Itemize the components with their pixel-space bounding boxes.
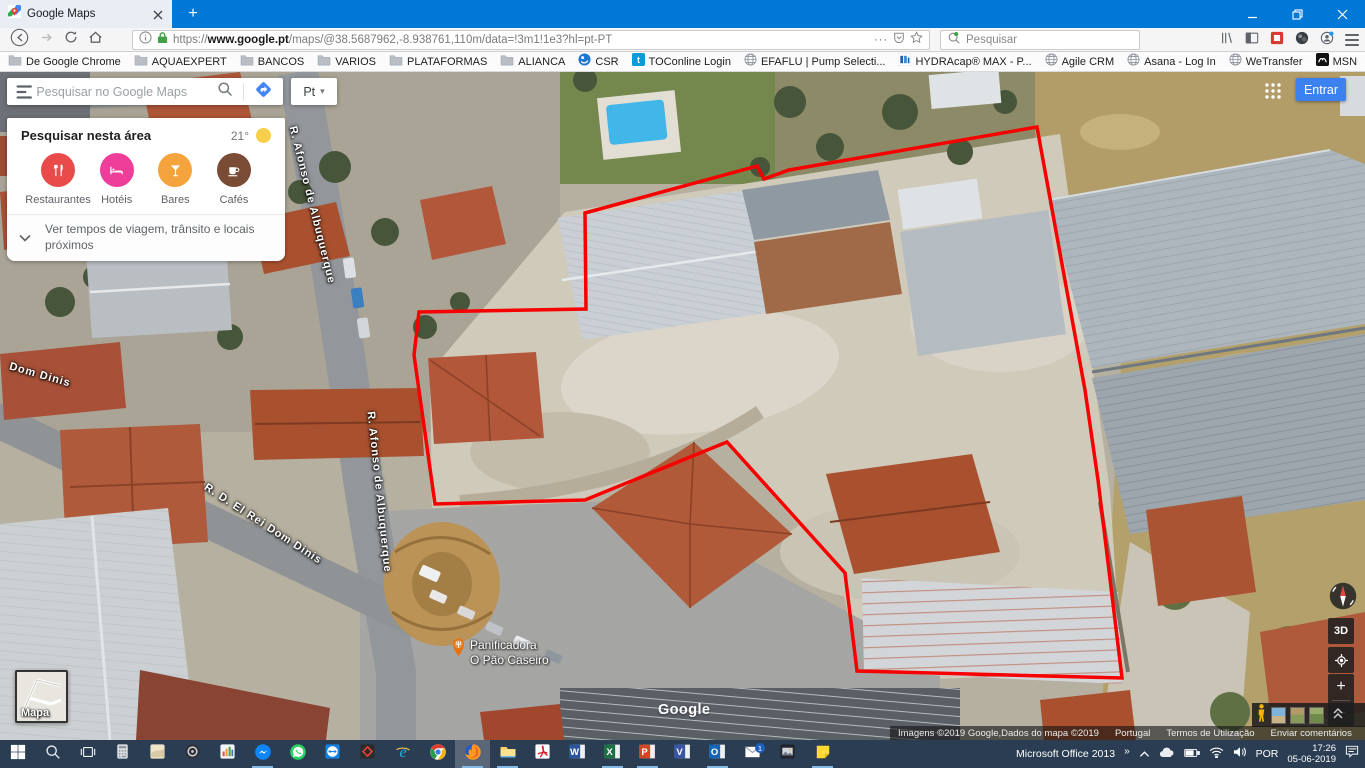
panel-title: Pesquisar nesta área: [21, 128, 231, 143]
teamviewer-icon: [324, 743, 341, 765]
extension-downloadhelper-icon[interactable]: [1295, 31, 1309, 50]
search-this-area-panel: Pesquisar nesta área 21° RestaurantesHot…: [7, 118, 285, 261]
bookmark-item[interactable]: CSR: [578, 53, 618, 71]
library-icon[interactable]: [1220, 31, 1234, 50]
weather-sun-icon[interactable]: [256, 128, 271, 143]
internet-explorer-icon: e: [394, 743, 412, 766]
restore-button[interactable]: [1275, 0, 1320, 28]
search-icon: [45, 744, 61, 765]
svg-text:V: V: [676, 747, 683, 758]
file-explorer-icon: [499, 743, 517, 766]
bookmark-item[interactable]: tTOConline Login: [632, 53, 731, 71]
browser-navbar: https://www.google.pt/maps/@38.5687962,-…: [0, 28, 1365, 52]
msn-icon: [1316, 53, 1329, 71]
account-icon[interactable]: [1320, 31, 1334, 50]
globe-icon: [1127, 53, 1140, 71]
word-icon: W: [568, 742, 587, 766]
temperature: 21°: [231, 129, 249, 143]
taskbar-app-sticky-notes[interactable]: [805, 740, 840, 768]
excel-icon: X: [603, 742, 622, 766]
bookmark-item[interactable]: BANCOS: [240, 53, 304, 71]
bookmark-item[interactable]: HYDRAcap® MAX - P...: [898, 53, 1031, 71]
sidebars-icon[interactable]: [1245, 31, 1259, 50]
task-view-icon: [80, 744, 96, 765]
taskbar-app-disc-app[interactable]: [175, 740, 210, 768]
search-engine-icon: [947, 31, 961, 50]
sticky-notes-icon: [815, 744, 831, 765]
close-button[interactable]: [1320, 0, 1365, 28]
maps-search-icon[interactable]: [217, 81, 233, 102]
notification-badge: 1: [755, 743, 765, 753]
restaurant-pin-icon: [452, 638, 465, 662]
cafe-icon[interactable]: [217, 153, 251, 187]
taskbar-app-photos[interactable]: [140, 740, 175, 768]
map-mode-thumbnail[interactable]: Mapa: [15, 670, 68, 723]
reload-button[interactable]: [64, 30, 78, 49]
taskbar-app-start[interactable]: [0, 740, 35, 768]
bookmark-item[interactable]: MSN: [1316, 53, 1357, 71]
tab-close-icon[interactable]: [152, 8, 164, 20]
taskbar-app-powerpoint[interactable]: P: [630, 740, 665, 768]
extension-screenshot-icon[interactable]: [1270, 31, 1284, 50]
bookmark-item[interactable]: WeTransfer: [1229, 53, 1303, 71]
imagery-thumbnail[interactable]: [1309, 707, 1324, 724]
travel-times-label: Ver tempos de viagem, trânsito e locais …: [45, 222, 275, 253]
maps-search-input[interactable]: [36, 85, 207, 99]
tray-chevron-up-icon[interactable]: [1139, 745, 1150, 763]
taskbar-app-mail[interactable]: 1: [735, 740, 770, 768]
google-apps-grid-icon[interactable]: [1264, 82, 1282, 100]
map-viewport[interactable]: PanificadoraO Pão Caseiro Google Pt▾ Pes…: [0, 72, 1365, 740]
site-info-icon[interactable]: [139, 31, 152, 49]
new-tab-button[interactable]: +: [178, 0, 208, 28]
bookmark-item[interactable]: ALIANCA: [500, 53, 565, 71]
svg-text:X: X: [606, 747, 613, 758]
start-icon: [10, 744, 26, 765]
imagery-credit: Imagens ©2019 Google,Dados do mapa ©2019: [898, 728, 1099, 739]
disc-app-icon: [184, 743, 201, 765]
pocket-icon[interactable]: [893, 31, 905, 49]
bookmark-item[interactable]: EFAFLU | Pump Selecti...: [744, 53, 886, 71]
windows-taskbar: eWXPVO1 Microsoft Office 2013 » POR 17:2…: [0, 740, 1365, 768]
taskbar-app-anydesk[interactable]: [350, 740, 385, 768]
map-attribution: Imagens ©2019 Google,Dados do mapa ©2019…: [890, 726, 1365, 740]
view-3d-button[interactable]: 3D: [1328, 618, 1354, 644]
minimize-button[interactable]: [1230, 0, 1275, 28]
taskbar-app-messenger[interactable]: [245, 740, 280, 768]
my-location-button[interactable]: [1328, 647, 1354, 673]
category-cafe[interactable]: Cafés: [205, 153, 263, 206]
chevron-down-icon: [19, 229, 31, 247]
outlook-icon: O: [708, 742, 727, 766]
compass-control[interactable]: [1328, 581, 1354, 616]
volume-icon[interactable]: [1233, 745, 1247, 763]
bookmarks-bar: De Google ChromeAQUAEXPERTBANCOSVARIOSPL…: [0, 52, 1365, 72]
toconline-icon: t: [632, 53, 645, 71]
visio-icon: V: [673, 742, 692, 766]
svg-text:O: O: [711, 747, 718, 758]
taskbar-app-outlook[interactable]: O: [700, 740, 735, 768]
bar-icon[interactable]: [158, 153, 192, 187]
map-thumb-label: Mapa: [21, 707, 49, 719]
taskbar-app-whatsapp[interactable]: [280, 740, 315, 768]
screen: Google Maps + https://www.google.pt/maps…: [0, 0, 1365, 768]
bookmark-item[interactable]: Asana - Log In: [1127, 53, 1216, 71]
imagery-thumbnail[interactable]: [1271, 707, 1286, 724]
equalizer-app-icon: [219, 743, 236, 765]
taskbar-app-file-explorer[interactable]: [490, 740, 525, 768]
zoom-in-button[interactable]: +: [1328, 674, 1354, 700]
browser-search-bar[interactable]: [940, 30, 1140, 50]
directions-icon[interactable]: [254, 80, 273, 104]
poi-label[interactable]: PanificadoraO Pão Caseiro: [452, 638, 549, 668]
forward-button[interactable]: [39, 30, 54, 50]
battery-icon[interactable]: [1184, 745, 1200, 763]
google-watermark: Google: [658, 702, 710, 718]
photos-icon: [149, 743, 166, 765]
bookmark-item[interactable]: AQUAEXPERT: [134, 53, 227, 71]
taskbar-app-chrome[interactable]: [420, 740, 455, 768]
maps-menu-icon[interactable]: [17, 90, 27, 92]
folder-icon: [8, 53, 22, 71]
taskbar-app-excel[interactable]: X: [595, 740, 630, 768]
csr-icon: [578, 53, 591, 71]
url-text: https://www.google.pt/maps/@38.5687962,-…: [173, 34, 869, 46]
https-lock-icon[interactable]: [157, 31, 168, 49]
travel-times-row[interactable]: Ver tempos de viagem, trânsito e locais …: [7, 214, 285, 261]
category-restaurant[interactable]: Restaurantes: [29, 153, 87, 206]
imagery-thumbnail[interactable]: [1290, 707, 1305, 724]
clock[interactable]: 17:2605-06-2019: [1287, 743, 1336, 766]
caret-down-icon: ▾: [320, 86, 325, 97]
bookmark-item[interactable]: PLATAFORMAS: [389, 53, 487, 71]
taskbar-app-movies[interactable]: [770, 740, 805, 768]
menu-icon[interactable]: [1345, 39, 1359, 41]
home-button[interactable]: [88, 30, 103, 50]
feedback-link[interactable]: Enviar comentários: [1271, 728, 1352, 739]
bookmark-item[interactable]: Agile CRM: [1045, 53, 1115, 71]
url-bar[interactable]: https://www.google.pt/maps/@38.5687962,-…: [132, 30, 930, 50]
folder-icon: [500, 53, 514, 71]
movies-icon: [779, 743, 796, 765]
taskbar-app-task-view[interactable]: [70, 740, 105, 768]
powerpoint-icon: P: [638, 742, 657, 766]
svg-text:t: t: [637, 55, 640, 65]
taskbar-app-firefox[interactable]: [455, 740, 490, 768]
maps-search-card[interactable]: [7, 78, 283, 105]
chrome-icon: [429, 743, 447, 766]
back-button[interactable]: [10, 28, 29, 52]
divider: [243, 83, 244, 101]
terms-link[interactable]: Termos de Utilização: [1166, 728, 1254, 739]
calculator-icon: [114, 743, 131, 765]
firefox-icon: [464, 743, 482, 766]
taskbar-app-equalizer-app[interactable]: [210, 740, 245, 768]
tab-title: Google Maps: [27, 8, 146, 20]
restaurant-icon[interactable]: [41, 153, 75, 187]
taskbar-app-calculator[interactable]: [105, 740, 140, 768]
office-tray-label: Microsoft Office 2013: [1016, 748, 1115, 760]
hotel-icon[interactable]: [100, 153, 134, 187]
svg-text:W: W: [570, 747, 579, 758]
browser-tab[interactable]: Google Maps: [0, 0, 172, 28]
hydracap-icon: [898, 53, 911, 71]
svg-text:e: e: [399, 744, 406, 761]
whatsapp-icon: [289, 743, 307, 766]
taskbar-app-word[interactable]: W: [560, 740, 595, 768]
taskbar-app-visio[interactable]: V: [665, 740, 700, 768]
folder-icon: [389, 53, 403, 71]
google-maps-favicon-icon: [8, 5, 21, 23]
pegman-icon[interactable]: [1256, 703, 1267, 728]
browser-search-input[interactable]: [966, 34, 1133, 46]
wifi-icon[interactable]: [1209, 745, 1224, 763]
bookmark-star-icon[interactable]: [910, 31, 923, 49]
taskbar-app-internet-explorer[interactable]: e: [385, 740, 420, 768]
browser-titlebar: Google Maps +: [0, 0, 1365, 28]
taskbar-app-search[interactable]: [35, 740, 70, 768]
category-hotel[interactable]: Hotéis: [88, 153, 146, 206]
input-language[interactable]: POR: [1256, 748, 1279, 760]
bookmark-item[interactable]: De Google Chrome: [8, 53, 121, 71]
globe-icon: [1045, 53, 1058, 71]
sign-in-button[interactable]: Entrar: [1296, 78, 1346, 101]
taskbar-app-acrobat[interactable]: [525, 740, 560, 768]
action-center-icon[interactable]: [1345, 745, 1359, 763]
messenger-icon: [254, 743, 272, 766]
onedrive-cloud-icon[interactable]: [1159, 745, 1175, 763]
imagery-bar: [1252, 703, 1365, 727]
chevron-up-double-icon[interactable]: [1332, 706, 1344, 725]
folder-icon: [317, 53, 331, 71]
language-selector[interactable]: Pt▾: [291, 78, 337, 105]
taskbar-app-teamviewer[interactable]: [315, 740, 350, 768]
category-bar[interactable]: Bares: [146, 153, 204, 206]
region-label: Portugal: [1115, 728, 1150, 739]
globe-icon: [1229, 53, 1242, 71]
folder-icon: [240, 53, 254, 71]
page-actions-icon[interactable]: ···: [874, 34, 888, 46]
tray-overflow-icon[interactable]: »: [1124, 746, 1130, 757]
bookmark-item[interactable]: VARIOS: [317, 53, 376, 71]
folder-icon: [134, 53, 148, 71]
acrobat-icon: [534, 743, 551, 765]
globe-icon: [744, 53, 757, 71]
anydesk-icon: [359, 743, 376, 765]
svg-text:P: P: [641, 747, 648, 758]
